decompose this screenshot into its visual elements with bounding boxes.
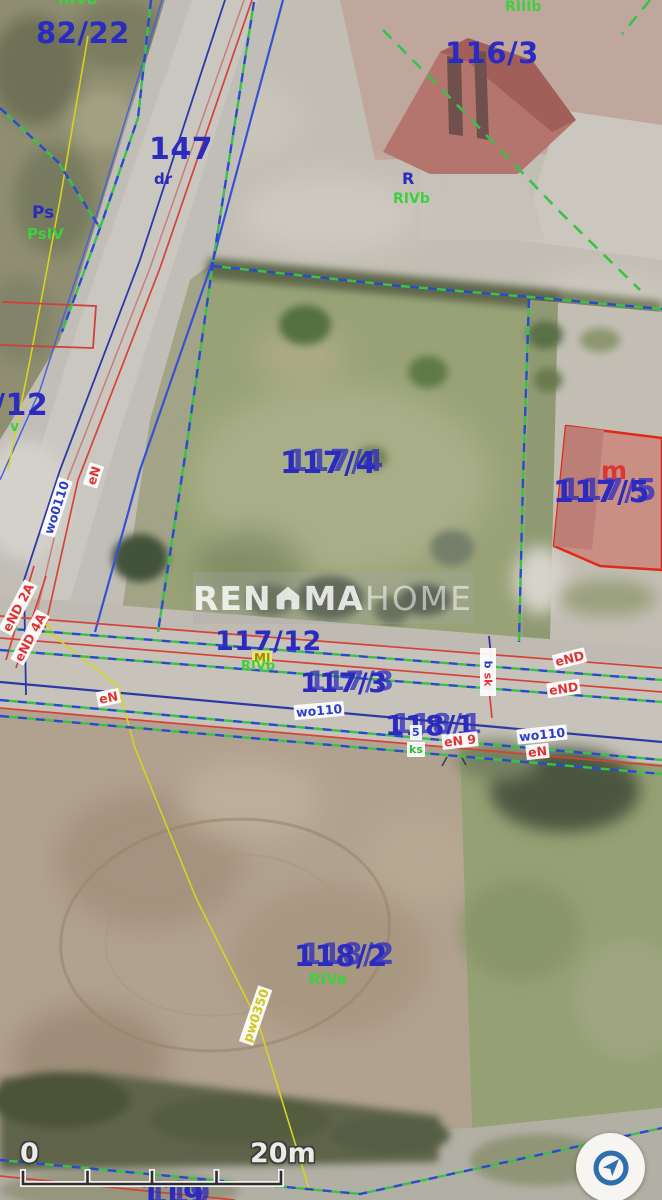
land-class-label: RIVb <box>241 660 275 674</box>
land-use-label: R <box>402 171 414 188</box>
watermark-text: REN <box>193 579 272 618</box>
watermark-text: MA <box>303 579 363 618</box>
water-line-label: wo0110 <box>40 477 72 538</box>
cadastral-map-canvas[interactable]: RIVb 82/22 RIIIb 116/3 147 dr Ps PsIV R … <box>0 0 662 1200</box>
land-class-label: RIVb <box>393 192 430 207</box>
scale-start-label: 0 <box>20 1138 39 1169</box>
watermark-text: HOME <box>365 579 473 618</box>
land-class-label: RIVa <box>309 972 347 988</box>
power-line-label: eN <box>83 462 104 488</box>
scale-ruler <box>20 1166 286 1192</box>
parcel-label: 117/3 <box>300 670 388 698</box>
locate-button[interactable] <box>576 1133 645 1200</box>
navigation-arrow-icon <box>588 1145 634 1191</box>
watermark-renomahome: REN MA HOME <box>193 572 473 624</box>
parcel-label: /12 <box>0 390 48 422</box>
parcel-label: 118/2 <box>294 941 388 971</box>
utility-label: sk <box>482 673 495 687</box>
utility-label: b <box>482 661 495 669</box>
building-label: m <box>601 458 627 484</box>
land-class-label: RIVb <box>58 0 97 8</box>
land-class-label: v <box>10 420 19 435</box>
utility-label-cluster: b sk <box>480 648 496 696</box>
utility-label: 5 <box>410 725 422 740</box>
scale-end-label: 20m <box>250 1138 316 1169</box>
gas-line-label: pw0350 <box>239 985 272 1046</box>
land-class-label: PsIV <box>27 227 64 243</box>
house-icon <box>274 583 302 613</box>
parcel-label: 147 <box>149 134 213 166</box>
land-class-label: RIIIb <box>505 0 541 15</box>
power-line-label: eND <box>546 679 581 698</box>
land-use-label: Ps <box>32 205 54 223</box>
power-line-label: eND <box>552 647 588 670</box>
water-line-label: wo110 <box>293 701 344 720</box>
land-use-label: dr <box>154 172 172 188</box>
utility-label: ks <box>407 742 425 757</box>
parcel-label: 117/4 <box>280 448 377 480</box>
power-line-label: eN <box>525 743 549 760</box>
power-line-label: eN 9 <box>441 731 478 750</box>
water-line-label: wo110 <box>516 724 568 744</box>
parcel-label: 116/3 <box>445 38 539 68</box>
parcel-label: 82/22 <box>36 18 130 48</box>
power-line-label: eN <box>96 688 121 707</box>
